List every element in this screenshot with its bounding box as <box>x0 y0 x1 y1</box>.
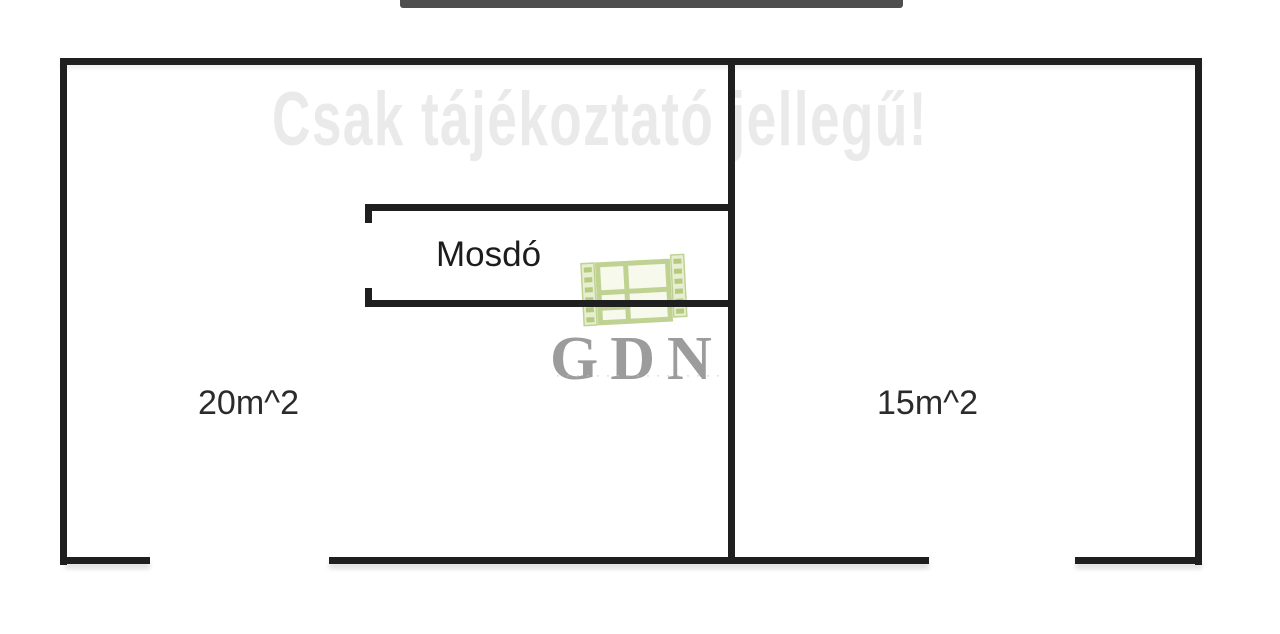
cropped-dark-top-bar <box>400 0 903 8</box>
left-room-area-label: 20m^2 <box>198 384 299 423</box>
wall-left <box>60 58 67 565</box>
floor-plan-image: Csak tájékoztató jellegű! 20m^2 15m^2 Mo… <box>0 0 1280 634</box>
wall-bottom-center-segment <box>329 557 929 564</box>
right-room-area-label: 15m^2 <box>877 384 978 423</box>
wall-bottom-right-segment <box>1075 557 1202 564</box>
washroom-name-label: Mosdó <box>436 235 541 275</box>
informational-watermark-text: Csak tájékoztató jellegű! <box>272 82 928 158</box>
washroom-door-jamb-upper <box>365 204 372 223</box>
wall-bottom-left-segment <box>65 557 150 564</box>
washroom-wall-top <box>365 204 735 211</box>
washroom-wall-bottom <box>365 300 735 307</box>
wall-room-divider <box>728 58 735 564</box>
wall-top <box>60 58 1202 65</box>
washroom-door-jamb-lower <box>365 288 372 307</box>
window-film-logo-icon <box>579 252 689 331</box>
gdn-tagline-dots: ················· <box>556 368 726 382</box>
wall-right <box>1195 58 1202 565</box>
